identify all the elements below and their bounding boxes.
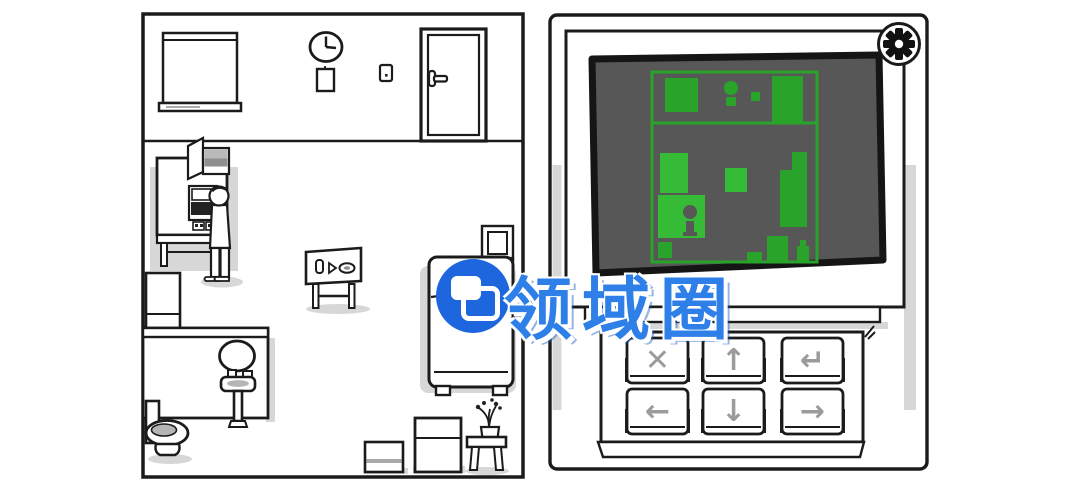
bathroom-partition: [143, 328, 275, 427]
down-arrow-icon: ↓: [721, 394, 746, 429]
large-box[interactable]: [413, 418, 465, 473]
map-machine: [660, 153, 688, 193]
game-screen: ✕ ↑ ↵ ←: [0, 0, 1080, 498]
key-right[interactable]: →: [780, 389, 845, 434]
window-blind[interactable]: [159, 33, 241, 111]
key-cancel[interactable]: ✕: [625, 338, 690, 383]
wall-clock[interactable]: [310, 33, 342, 62]
left-arrow-icon: ←: [645, 394, 670, 429]
cancel-icon: ✕: [645, 343, 670, 378]
map-small-box: [747, 252, 762, 262]
map-window: [665, 78, 698, 112]
map-table: [725, 168, 747, 192]
keypad: ✕ ↑ ↵ ←: [598, 326, 875, 457]
wall-note[interactable]: [317, 66, 334, 91]
room-scene: [0, 0, 540, 498]
mirror[interactable]: [220, 341, 255, 371]
map-bathroom: [658, 195, 705, 238]
map-toilet: [658, 242, 672, 258]
enter-icon: ↵: [800, 343, 825, 378]
right-arrow-icon: →: [800, 394, 825, 429]
key-enter[interactable]: ↵: [780, 338, 845, 383]
map-door: [772, 76, 803, 123]
map-large-box: [767, 236, 788, 262]
settings-gear-icon[interactable]: [879, 24, 920, 65]
key-left[interactable]: ←: [625, 389, 690, 434]
door[interactable]: [421, 29, 486, 141]
cabinet[interactable]: [146, 273, 180, 332]
up-arrow-icon: ↑: [721, 343, 746, 378]
key-up[interactable]: ↑: [701, 338, 766, 383]
small-box[interactable]: [364, 442, 408, 474]
light-switch[interactable]: [380, 65, 392, 81]
monitor-device: ✕ ↑ ↵ ←: [540, 0, 1080, 498]
key-down[interactable]: ↓: [701, 389, 766, 434]
map-switch: [751, 92, 760, 101]
